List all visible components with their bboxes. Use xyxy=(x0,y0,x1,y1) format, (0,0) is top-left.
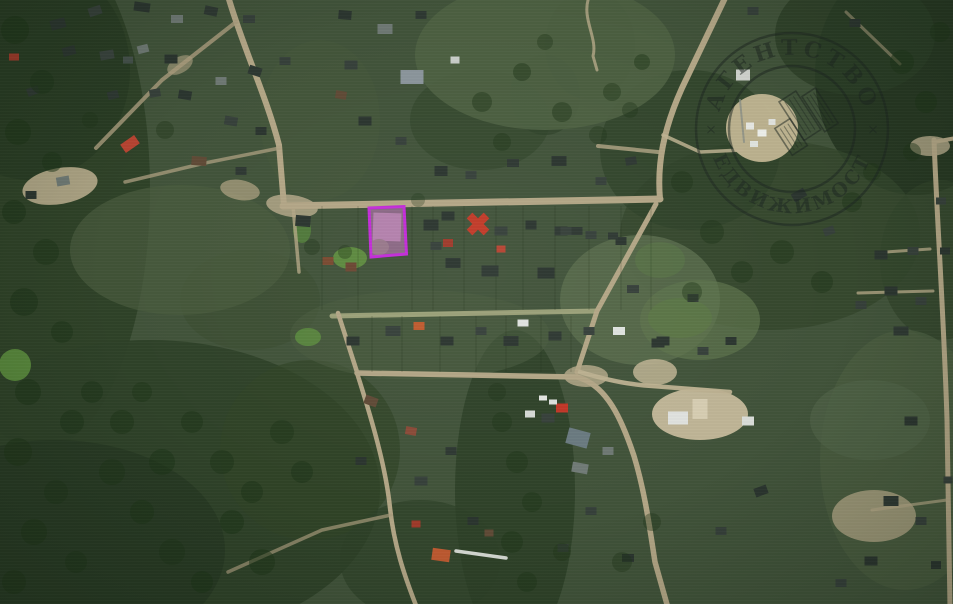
highlighted-parcel-group xyxy=(369,207,407,258)
watermark-side-mark-right: × xyxy=(867,122,879,138)
satellite-map-canvas: АГЕНТСТВО НЕДВИЖИМОСТИ × × xyxy=(0,0,953,604)
satellite-map-view[interactable]: АГЕНТСТВО НЕДВИЖИМОСТИ × × xyxy=(0,0,953,604)
highlighted-parcel-outline[interactable] xyxy=(369,207,407,258)
watermark-side-mark-left: × xyxy=(705,122,717,138)
